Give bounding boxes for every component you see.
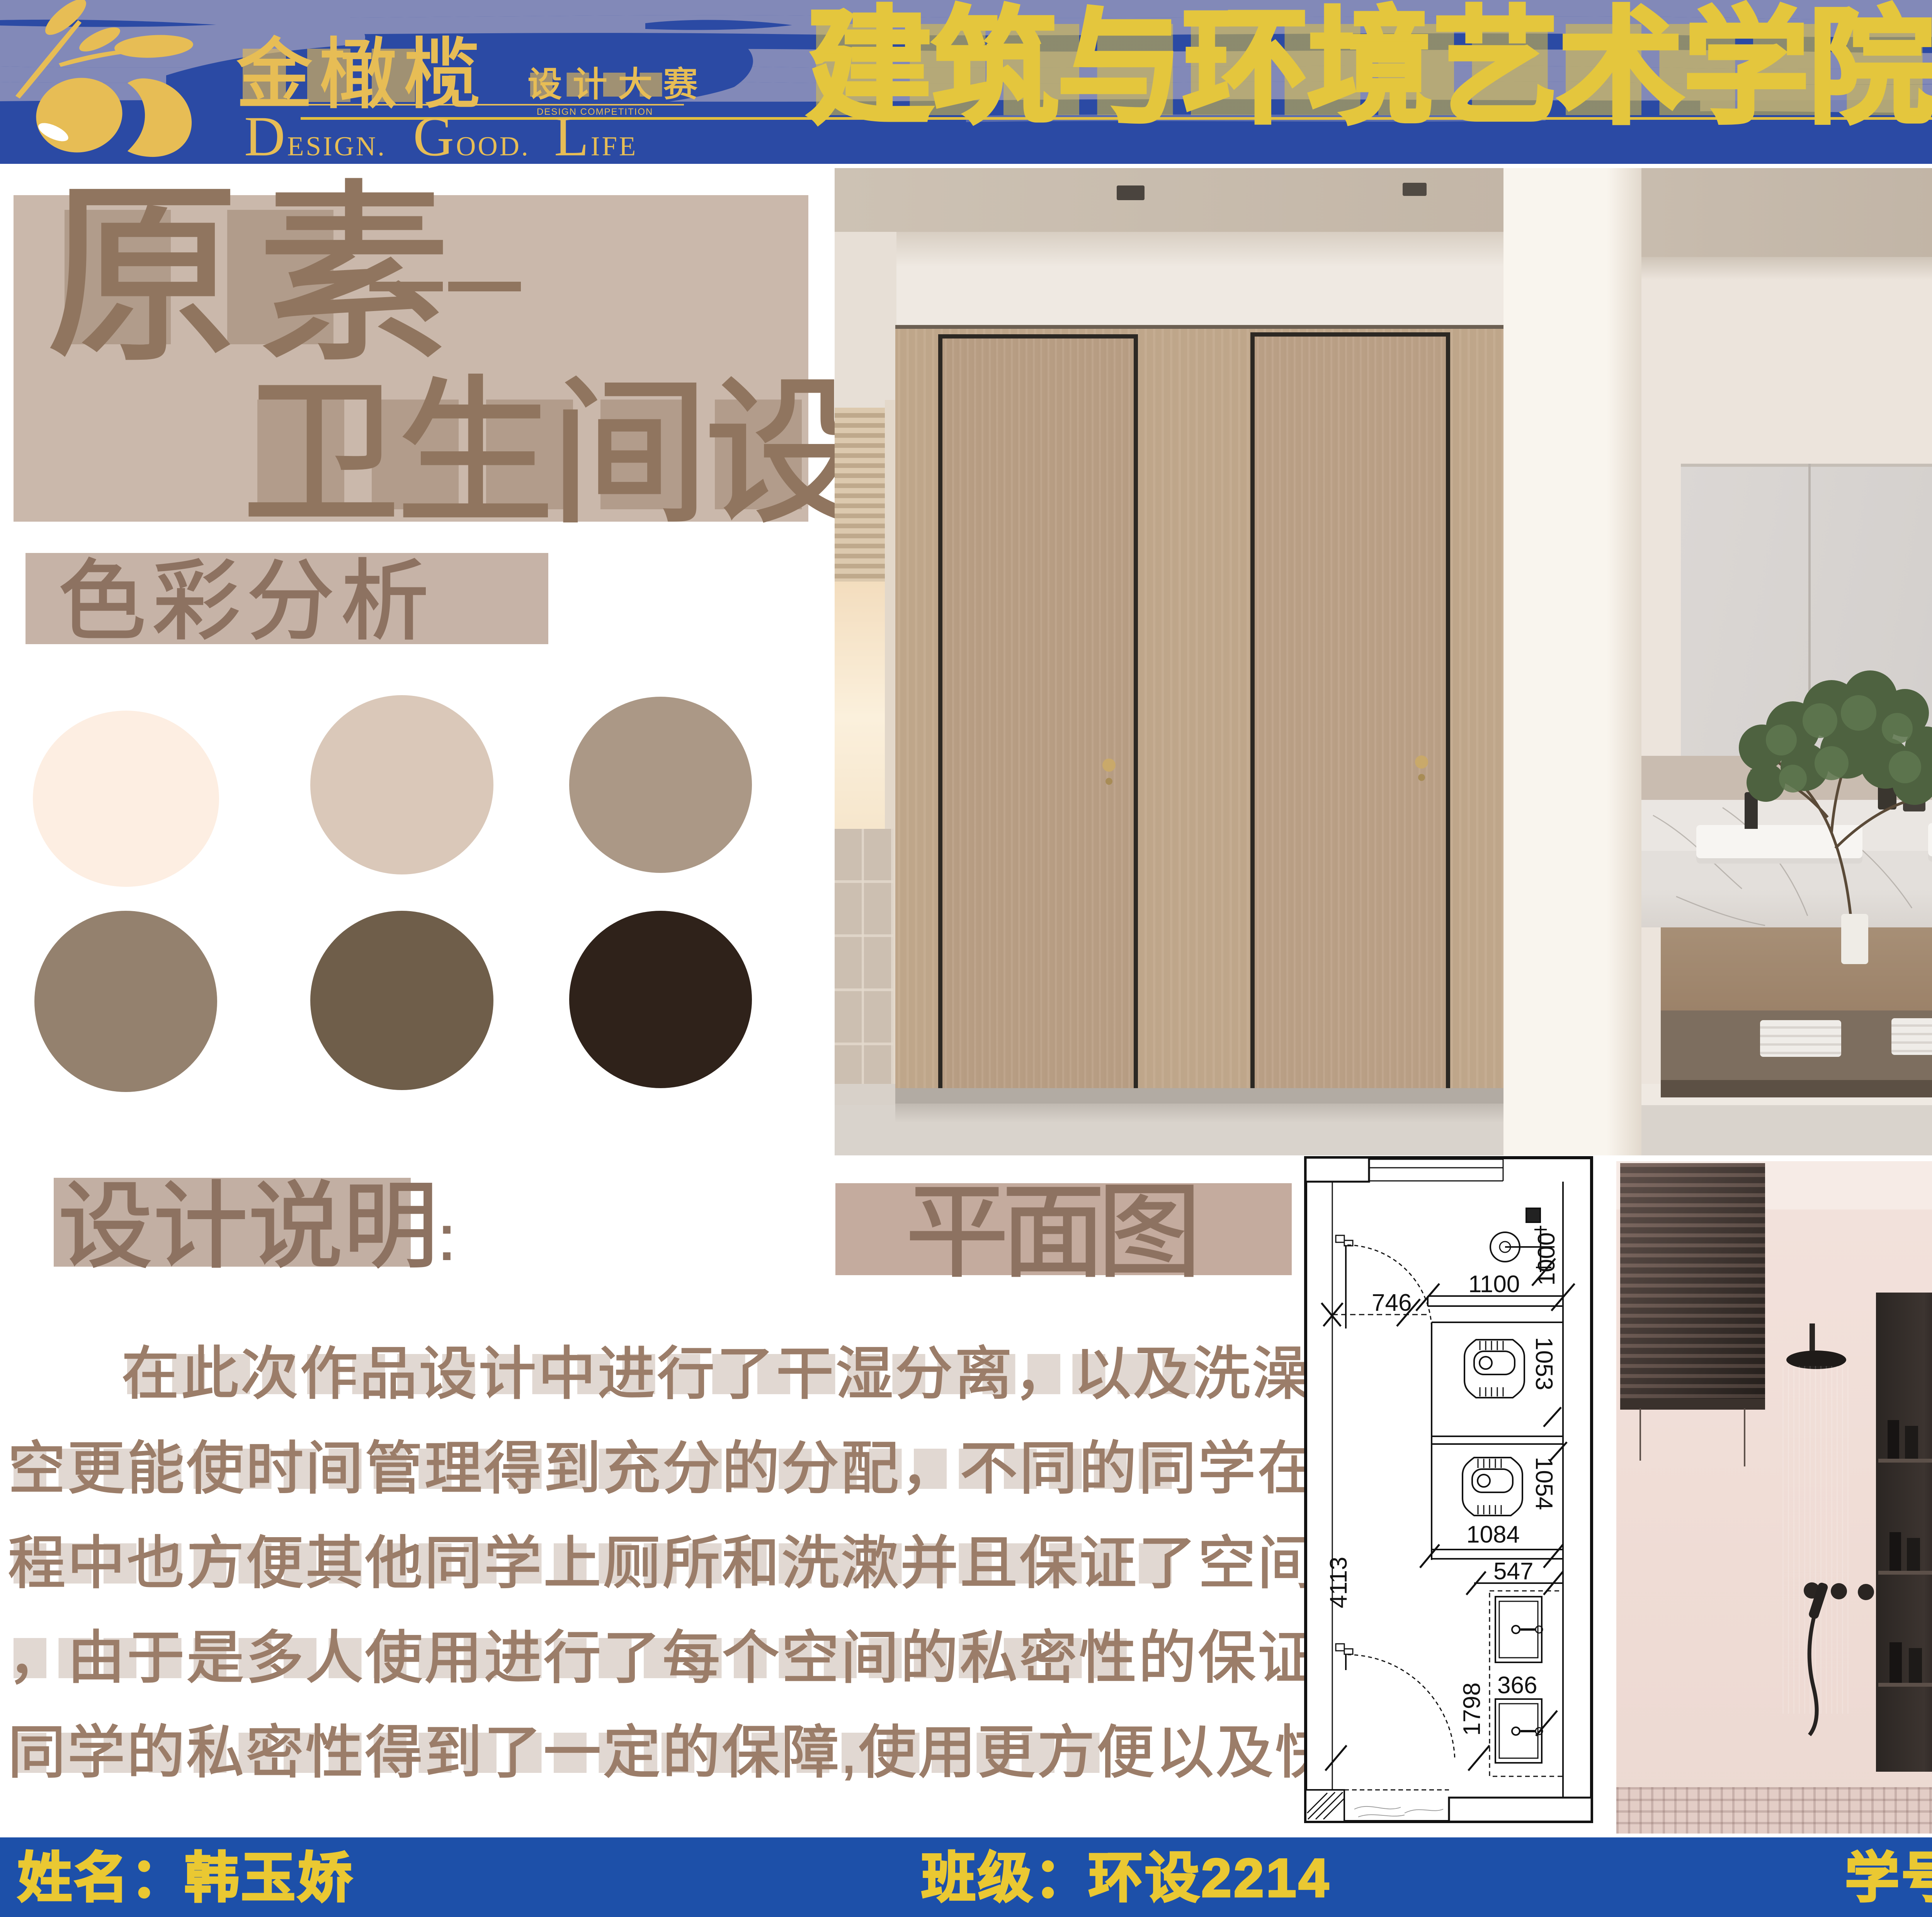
svg-text:1053: 1053	[1531, 1337, 1557, 1390]
svg-text:547: 547	[1493, 1558, 1533, 1585]
svg-text:1084: 1084	[1466, 1521, 1520, 1548]
svg-text:1100: 1100	[1468, 1271, 1520, 1298]
svg-text:4113: 4113	[1325, 1557, 1352, 1608]
svg-text:1054: 1054	[1531, 1457, 1557, 1510]
svg-text:1798: 1798	[1459, 1682, 1485, 1736]
svg-text:1000: 1000	[1533, 1232, 1560, 1286]
svg-text:366: 366	[1497, 1672, 1537, 1699]
svg-text:746: 746	[1372, 1289, 1412, 1316]
